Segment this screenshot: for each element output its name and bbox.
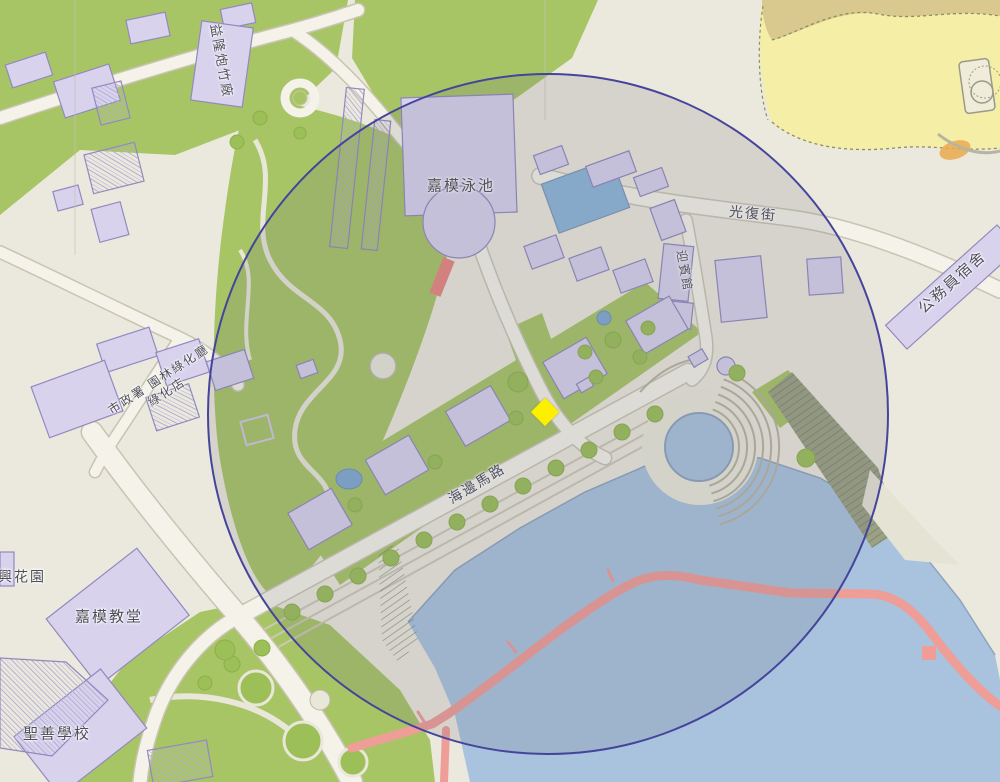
map-canvas[interactable]: 益隆炮竹廠嘉模泳池光復街迎賓館公務員宿舍市政署 園林綠化廳綠化店海邊馬路興花園嘉…: [0, 0, 1000, 782]
firecracker-factory-building: [191, 21, 254, 107]
base-map: [0, 0, 1000, 782]
guest-house-building: [658, 244, 694, 302]
garden-plaza: [370, 353, 396, 379]
round-pond: [665, 413, 733, 481]
roundabout: [285, 83, 315, 113]
